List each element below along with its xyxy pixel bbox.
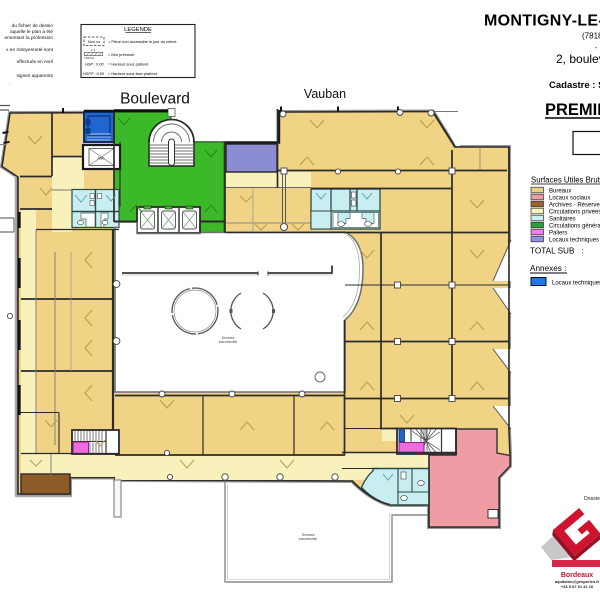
svg-text:Circulations privées: Circulations privées xyxy=(549,209,600,215)
svg-text:Locaux techniques: Locaux techniques xyxy=(549,237,599,243)
svg-text:+33 5 67 61 41 16: +33 5 67 61 41 16 xyxy=(561,584,594,589)
svg-text:x en mitoyenneté sont: x en mitoyenneté sont xyxy=(6,47,54,53)
svg-text:Paliers: Paliers xyxy=(549,230,567,236)
svg-text:Locaux sociaux: Locaux sociaux xyxy=(549,195,590,201)
svg-text:Annexes :: Annexes : xyxy=(530,264,566,273)
svg-text:= Hauteur sous faux plafond: = Hauteur sous faux plafond xyxy=(108,71,157,76)
svg-text:Circulations générales: Circulations générales xyxy=(549,223,600,229)
svg-text:inaccessible: inaccessible xyxy=(219,340,238,344)
svg-text:du fichier de dessin: du fichier de dessin xyxy=(12,23,54,29)
svg-text:Dossier: Dossier xyxy=(584,496,600,502)
svg-text:HSFP : 0.00: HSFP : 0.00 xyxy=(83,71,105,76)
svg-text:= Mur présumé: = Mur présumé xyxy=(108,52,134,57)
svg-text:Surfaces Utiles Brutes :: Surfaces Utiles Brutes : xyxy=(531,176,600,185)
svg-text:PREMIER ÉTAGE: PREMIER ÉTAGE xyxy=(545,100,600,119)
svg-text:.: . xyxy=(9,82,10,87)
svg-text:1 1: 1 1 xyxy=(91,48,95,52)
svg-text:inaccessible: inaccessible xyxy=(299,537,318,541)
svg-text:TOTAL SUB :: TOTAL SUB : xyxy=(530,247,584,256)
svg-text:Non vu: Non vu xyxy=(88,40,100,44)
svg-text:(78180): (78180) xyxy=(582,32,600,41)
svg-text:effectués en Avril: effectués en Avril xyxy=(17,59,53,65)
svg-text:HSP : 0.00: HSP : 0.00 xyxy=(85,62,105,67)
svg-text:MONTIGNY-LE-BRETONNEUX: MONTIGNY-LE-BRETONNEUX xyxy=(484,13,600,30)
svg-text:Bordeaux: Bordeaux xyxy=(561,572,593,579)
svg-text:Vauban: Vauban xyxy=(304,87,346,101)
svg-text:ementant la profession: ementant la profession xyxy=(4,35,53,41)
svg-text:aquelle le plan a été: aquelle le plan a été xyxy=(10,29,53,35)
svg-text:= Pièce non accessible le jour: = Pièce non accessible le jour du relevé xyxy=(108,39,177,44)
svg-text:Sanitaires: Sanitaires xyxy=(549,216,576,222)
svg-text:Bureaux: Bureaux xyxy=(549,188,571,194)
svg-text:= Hauteur sous plafond: = Hauteur sous plafond xyxy=(108,62,148,67)
svg-text:0.00/0.00: 0.00/0.00 xyxy=(84,57,95,60)
svg-text:Locaux techniques: Locaux techniques xyxy=(552,281,600,287)
svg-text:Cadastre : Section AB: Cadastre : Section AB xyxy=(549,80,600,91)
svg-text:Asc.: Asc. xyxy=(97,156,105,161)
svg-text:Archives - Réserves: Archives - Réserves xyxy=(549,202,600,208)
svg-text:Boulevard: Boulevard xyxy=(120,91,190,108)
svg-text:signes apparents: signes apparents xyxy=(16,73,53,79)
svg-text:2, boulevard Vauban: 2, boulevard Vauban xyxy=(556,52,600,66)
